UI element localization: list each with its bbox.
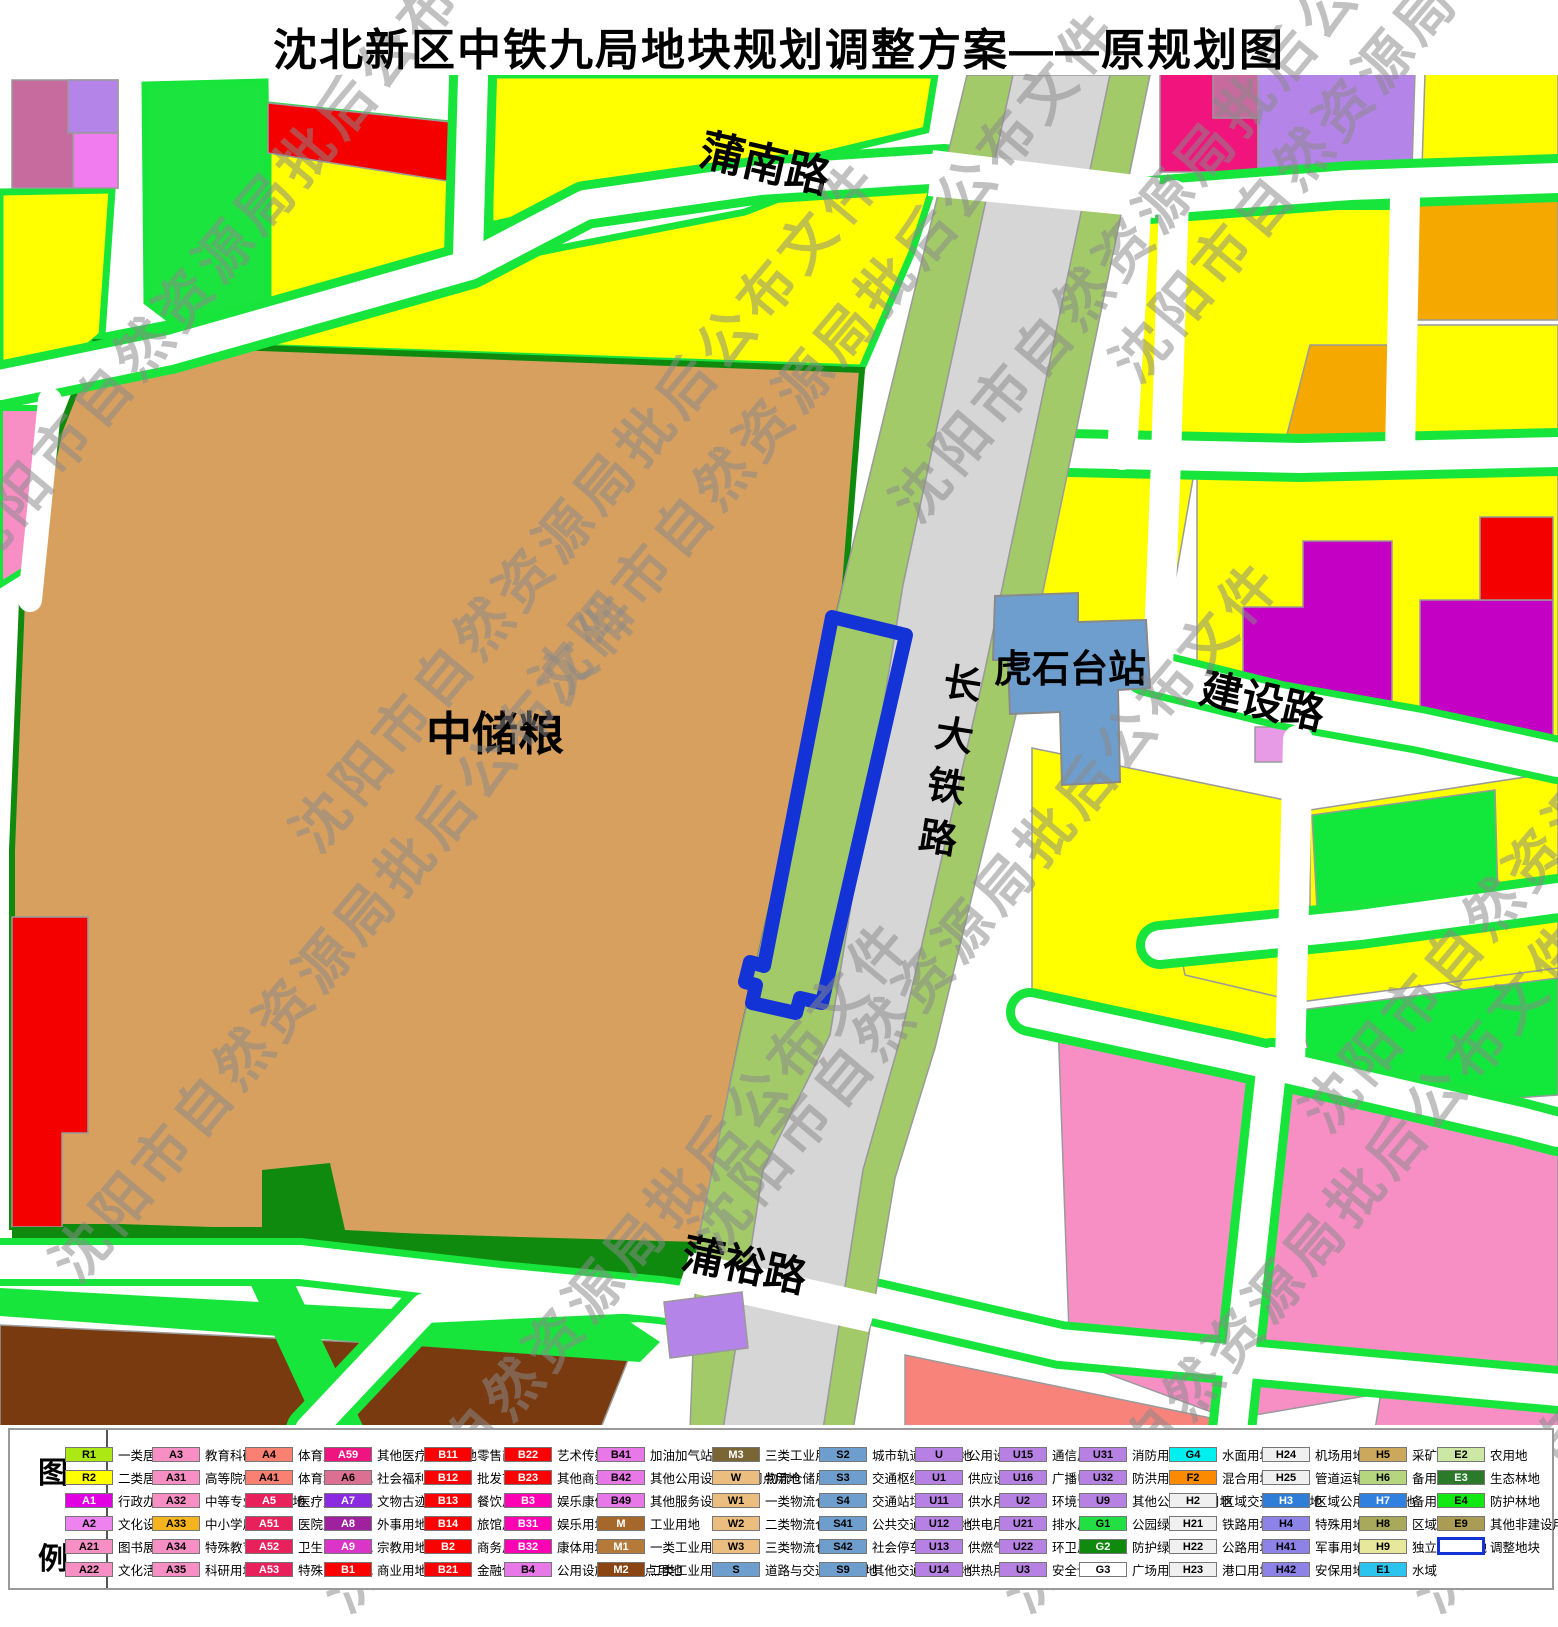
legend-swatch: E1 xyxy=(1359,1562,1407,1577)
legend-swatch: A51 xyxy=(245,1516,293,1531)
legend-swatch: H6 xyxy=(1359,1470,1407,1485)
parcel-purple xyxy=(68,80,118,133)
legend-swatch: U31 xyxy=(1079,1447,1127,1462)
legend-swatch: U21 xyxy=(999,1516,1047,1531)
legend-label: 水域 xyxy=(1412,1560,1437,1579)
legend-swatch: H2 xyxy=(1169,1493,1217,1508)
legend-swatch: E2 xyxy=(1437,1447,1485,1462)
legend-swatch xyxy=(1437,1537,1485,1555)
legend-label: 军事用地 xyxy=(1315,1537,1365,1556)
legend-swatch: U1 xyxy=(915,1470,963,1485)
legend-item-G4: G4水面用地 xyxy=(1169,1446,1272,1462)
legend-swatch: M1 xyxy=(597,1539,645,1554)
legend-item-M2: M2二类工业用地 xyxy=(597,1561,725,1577)
legend-swatch: U16 xyxy=(999,1470,1047,1485)
legend-swatch: A5 xyxy=(245,1493,293,1508)
legend-item-H6: H6备用地 xyxy=(1359,1469,1450,1485)
legend-item-H21: H21铁路用地 xyxy=(1169,1515,1272,1531)
legend-label: 特殊用地 xyxy=(1315,1514,1365,1533)
legend-item-E4: E4防护林地 xyxy=(1437,1492,1540,1508)
legend-swatch: S42 xyxy=(819,1539,867,1554)
legend-swatch: B21 xyxy=(424,1562,472,1577)
legend-heading: 例 xyxy=(38,1534,68,1578)
station-label: 虎石台站 xyxy=(994,638,1146,693)
legend-swatch: B12 xyxy=(424,1470,472,1485)
legend-swatch: B3 xyxy=(504,1493,552,1508)
legend-swatch: R2 xyxy=(65,1470,113,1485)
legend-swatch: U3 xyxy=(999,1562,1047,1577)
legend-swatch: M3 xyxy=(712,1447,760,1462)
legend-swatch: U11 xyxy=(915,1493,963,1508)
legend-item-M1: M1一类工业用地 xyxy=(597,1538,725,1554)
legend-swatch: W2 xyxy=(712,1516,760,1531)
legend-swatch: U9 xyxy=(1079,1493,1127,1508)
legend-item-H24: H24机场用地 xyxy=(1262,1446,1365,1462)
parcel-violet xyxy=(73,133,118,188)
legend-swatch: U12 xyxy=(915,1516,963,1531)
legend-swatch: U32 xyxy=(1079,1470,1127,1485)
legend-item-E9: E9其他非建设用地 xyxy=(1437,1515,1558,1531)
legend-swatch: A1 xyxy=(65,1493,113,1508)
legend-swatch: B49 xyxy=(597,1493,645,1508)
legend-label: 宗教用地 xyxy=(377,1537,427,1556)
legend-swatch: A3 xyxy=(152,1447,200,1462)
legend-swatch: H21 xyxy=(1169,1516,1217,1531)
parcel-purple xyxy=(1258,75,1415,170)
legend-swatch: H25 xyxy=(1262,1470,1310,1485)
legend-swatch: E9 xyxy=(1437,1516,1485,1531)
legend-swatch: A52 xyxy=(245,1539,293,1554)
legend-item-H7: H7备用地 xyxy=(1359,1492,1450,1508)
legend-item-B1: B1商业用地 xyxy=(324,1561,427,1577)
legend-swatch: B2 xyxy=(424,1539,472,1554)
legend-swatch: H4 xyxy=(1262,1516,1310,1531)
legend-swatch: U22 xyxy=(999,1539,1047,1554)
legend-swatch: S4 xyxy=(819,1493,867,1508)
legend-swatch: S3 xyxy=(819,1470,867,1485)
legend-label: 农用地 xyxy=(1490,1445,1528,1464)
legend-swatch: H24 xyxy=(1262,1447,1310,1462)
legend-swatch: H42 xyxy=(1262,1562,1310,1577)
parcel-purple-small xyxy=(664,1292,748,1358)
legend-swatch: U14 xyxy=(915,1562,963,1577)
legend-item-H42: H42安保用地 xyxy=(1262,1561,1365,1577)
legend-swatch: M2 xyxy=(597,1562,645,1577)
legend-swatch: A32 xyxy=(152,1493,200,1508)
legend-swatch: S41 xyxy=(819,1516,867,1531)
legend-swatch: A31 xyxy=(152,1470,200,1485)
legend-swatch: B13 xyxy=(424,1493,472,1508)
legend-item-F2: F2混合用地 xyxy=(1169,1469,1272,1485)
legend-item-U32: U32防洪用地 xyxy=(1079,1469,1182,1485)
legend-swatch: A7 xyxy=(324,1493,372,1508)
legend-swatch: U15 xyxy=(999,1447,1047,1462)
legend-label: 防护林地 xyxy=(1490,1491,1540,1510)
legend-item-B32: B32康体用地 xyxy=(504,1538,607,1554)
legend-swatch: B41 xyxy=(597,1447,645,1462)
granary-label: 中储粮 xyxy=(426,698,564,764)
legend-label: 外事用地 xyxy=(377,1514,427,1533)
legend-swatch: M xyxy=(597,1516,645,1531)
legend-swatch: U13 xyxy=(915,1539,963,1554)
legend-label: 商业用地 xyxy=(377,1560,427,1579)
legend-swatch: A59 xyxy=(324,1447,372,1462)
legend-swatch: W1 xyxy=(712,1493,760,1508)
parcel-yellow xyxy=(1422,75,1558,168)
legend-item-H23: H23港口用地 xyxy=(1169,1561,1272,1577)
legend-swatch: H5 xyxy=(1359,1447,1407,1462)
parcel-mauve xyxy=(1213,75,1258,118)
legend-item-E2: E2农用地 xyxy=(1437,1446,1528,1462)
legend-swatch: W3 xyxy=(712,1539,760,1554)
legend-swatch: G4 xyxy=(1169,1447,1217,1462)
page-title: 沈北新区中铁九局地块规划调整方案——原规划图 xyxy=(0,14,1558,78)
legend-item-adjust-parcel: 调整地块 xyxy=(1437,1538,1540,1554)
parcel-orange xyxy=(1412,198,1558,320)
legend-swatch: H8 xyxy=(1359,1516,1407,1531)
legend-swatch: W xyxy=(712,1470,760,1485)
legend-item-G2: G2防护绿地 xyxy=(1079,1538,1182,1554)
legend-swatch: H41 xyxy=(1262,1539,1310,1554)
legend-label: 工业用地 xyxy=(650,1514,700,1533)
legend-swatch: E4 xyxy=(1437,1493,1485,1508)
planning-map-page: { "title": "沈北新区中铁九局地块规划调整方案——原规划图", "wa… xyxy=(0,0,1558,1600)
legend-swatch: A41 xyxy=(245,1470,293,1485)
parcel-green xyxy=(145,82,268,333)
legend-item-A8: A8外事用地 xyxy=(324,1515,427,1531)
legend-swatch: U2 xyxy=(999,1493,1047,1508)
legend-swatch: B22 xyxy=(504,1447,552,1462)
legend-swatch: B32 xyxy=(504,1539,552,1554)
legend-label: 生态林地 xyxy=(1490,1468,1540,1487)
legend-swatch: A8 xyxy=(324,1516,372,1531)
legend-label: 安保用地 xyxy=(1315,1560,1365,1579)
legend-item-E1: E1水域 xyxy=(1359,1561,1437,1577)
legend-item-G1: G1公园绿地 xyxy=(1079,1515,1182,1531)
legend-item-A35: A35科研用地 xyxy=(152,1561,255,1577)
legend-item-A9: A9宗教用地 xyxy=(324,1538,427,1554)
legend-swatch: B11 xyxy=(424,1447,472,1462)
legend-swatch: A21 xyxy=(65,1539,113,1554)
legend-swatch: A9 xyxy=(324,1539,372,1554)
legend-swatch: B1 xyxy=(324,1562,372,1577)
legend-swatch: H7 xyxy=(1359,1493,1407,1508)
legend-swatch: B4 xyxy=(504,1562,552,1577)
legend-swatch: B31 xyxy=(504,1516,552,1531)
legend-swatch: A22 xyxy=(65,1562,113,1577)
legend-swatch: A35 xyxy=(152,1562,200,1577)
legend-item-H4: H4特殊用地 xyxy=(1262,1515,1365,1531)
legend-swatch: B42 xyxy=(597,1470,645,1485)
parcel-red xyxy=(1480,517,1553,600)
planning-map-canvas xyxy=(0,75,1558,1425)
legend-item-H22: H22公路用地 xyxy=(1169,1538,1272,1554)
legend-heading: 图 xyxy=(38,1448,68,1492)
legend-swatch: H22 xyxy=(1169,1539,1217,1554)
legend-item-U31: U31消防用地 xyxy=(1079,1446,1182,1462)
legend-swatch: F2 xyxy=(1169,1470,1217,1485)
legend: 图 例 R1一类居住用地R2二类居住用地A1行政办公用地A2文化设施用地A21图… xyxy=(8,1428,1554,1590)
legend-label: 其他非建设用地 xyxy=(1490,1514,1558,1533)
legend-swatch: U xyxy=(915,1447,963,1462)
legend-label: 调整地块 xyxy=(1490,1537,1540,1556)
legend-swatch: A53 xyxy=(245,1562,293,1577)
legend-swatch: B14 xyxy=(424,1516,472,1531)
legend-swatch: S2 xyxy=(819,1447,867,1462)
legend-item-B31: B31娱乐用地 xyxy=(504,1515,607,1531)
legend-swatch: A4 xyxy=(245,1447,293,1462)
legend-swatch: G1 xyxy=(1079,1516,1127,1531)
legend-swatch: H23 xyxy=(1169,1562,1217,1577)
legend-swatch: E3 xyxy=(1437,1470,1485,1485)
legend-swatch: A34 xyxy=(152,1539,200,1554)
legend-swatch: S xyxy=(712,1562,760,1577)
legend-item-H41: H41军事用地 xyxy=(1262,1538,1365,1554)
legend-item-E3: E3生态林地 xyxy=(1437,1469,1540,1485)
legend-swatch: B23 xyxy=(504,1470,552,1485)
legend-item-G3: G3广场用地 xyxy=(1079,1561,1182,1577)
legend-swatch: A33 xyxy=(152,1516,200,1531)
legend-swatch: G3 xyxy=(1079,1562,1127,1577)
legend-swatch: H3 xyxy=(1262,1493,1310,1508)
legend-swatch: A6 xyxy=(324,1470,372,1485)
legend-swatch: G2 xyxy=(1079,1539,1127,1554)
legend-swatch: A2 xyxy=(65,1516,113,1531)
legend-swatch: R1 xyxy=(65,1447,113,1462)
legend-swatch: H9 xyxy=(1359,1539,1407,1554)
legend-swatch: S9 xyxy=(819,1562,867,1577)
legend-label: 机场用地 xyxy=(1315,1445,1365,1464)
legend-item-M: M工业用地 xyxy=(597,1515,700,1531)
